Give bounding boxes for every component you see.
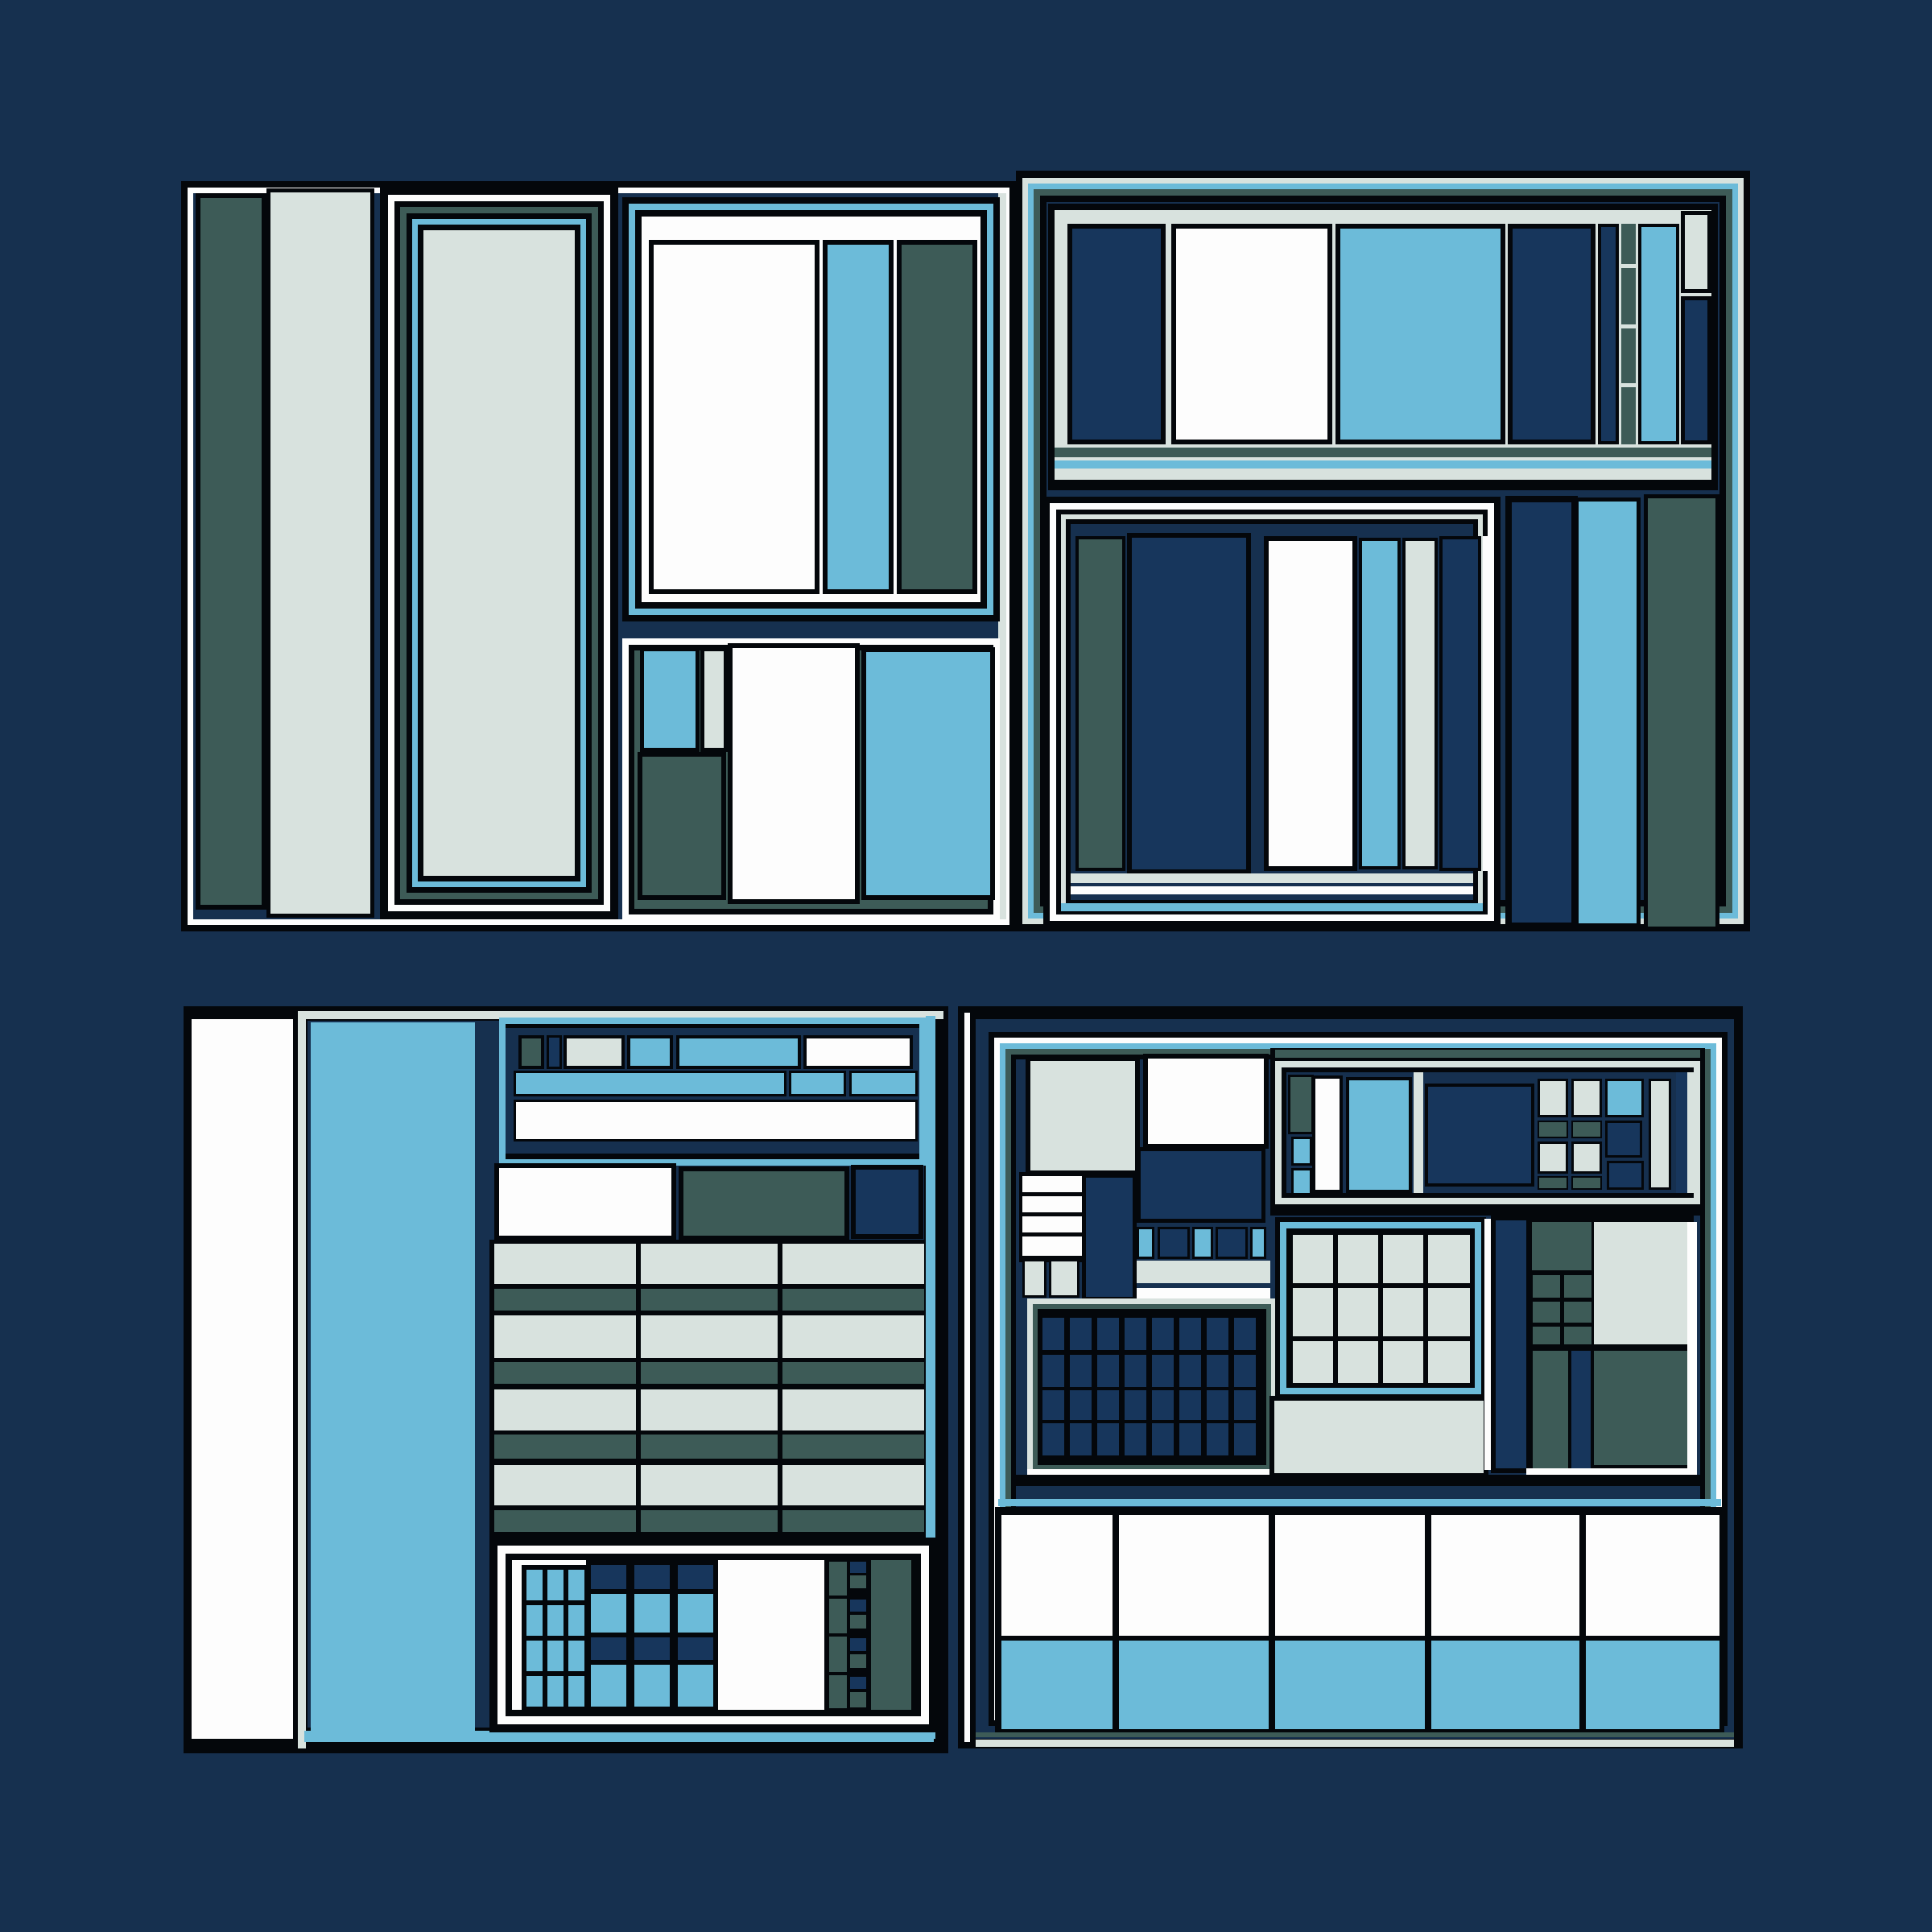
tr-boxl-gray-band <box>1071 873 1473 883</box>
br-cellrow-b2 <box>1192 1227 1213 1259</box>
br-brow-c2 <box>1119 1641 1269 1729</box>
br-sub-scell <box>1288 1075 1314 1134</box>
br-white-line <box>1484 1219 1491 1470</box>
bl-alt-1 <box>850 1562 866 1573</box>
br-sub-bcell1 <box>1291 1137 1312 1166</box>
tl-col-slate <box>196 193 266 910</box>
tr-colr-slate <box>1644 494 1719 931</box>
tr-boxt-stripe1 <box>1621 224 1636 264</box>
bl-boxb-slate-col <box>871 1560 911 1710</box>
br-grid-r3-c3 <box>1097 1390 1119 1420</box>
tr-boxl-col-blue <box>1359 538 1401 869</box>
br-grid-r4-c4 <box>1125 1423 1146 1455</box>
bl-r2-blue1 <box>514 1071 786 1096</box>
br-sub-s42 <box>1571 1176 1602 1190</box>
bl-alt-3 <box>850 1600 866 1612</box>
tr-boxl-col-gray <box>1402 538 1438 869</box>
br-lgrid-r2-c2 <box>1338 1288 1378 1336</box>
bl-r1-white <box>803 1035 913 1069</box>
br-lgrid-r3-c3 <box>1383 1341 1423 1383</box>
br-sub-s41 <box>1538 1176 1568 1190</box>
bl-r1-blue1 <box>627 1035 673 1069</box>
tr-colr-blue <box>1575 497 1641 927</box>
br-sub-wcol <box>1312 1075 1343 1193</box>
tl-col-gray <box>266 188 374 918</box>
bl-gridR-r4-c1 <box>591 1665 626 1707</box>
bl-gridL-r1-c1 <box>526 1570 543 1600</box>
tr-colr-navy <box>1512 502 1571 923</box>
br-sub-mband <box>1676 1072 1687 1193</box>
bl-gridL-r3-c1 <box>526 1641 543 1671</box>
br-rg-sg21 <box>1533 1302 1560 1323</box>
tr-boxt-navy-cell <box>1681 296 1711 444</box>
br-grid-r4-c3 <box>1097 1423 1119 1455</box>
br-sub-b13 <box>1605 1079 1644 1117</box>
br-rg-navy-col <box>1571 1351 1591 1470</box>
bl-detail-s4 <box>829 1675 847 1708</box>
tr-boxt-col-blue <box>1335 224 1505 444</box>
br-rg-sg32 <box>1564 1327 1591 1344</box>
tr-boxl-col-slate <box>1075 536 1125 871</box>
br-wrow-c3 <box>1275 1515 1425 1636</box>
bl-r1-slate <box>518 1035 544 1069</box>
bl-r1-navy <box>547 1035 562 1069</box>
bl-gridR-r2-c3 <box>678 1594 713 1633</box>
br-grid-r4-c5 <box>1152 1423 1174 1455</box>
bl-col-blue <box>311 1022 475 1737</box>
bl-table-r4-c1 <box>494 1362 636 1384</box>
br-brow-c5 <box>1586 1641 1719 1729</box>
tr-boxl-white-band <box>1071 886 1473 894</box>
bl-gridL-r2-c1 <box>526 1605 543 1636</box>
bl-table-r4-c3 <box>782 1362 924 1384</box>
bl-gridL-r2-c2 <box>547 1605 563 1636</box>
bl-gray-v-bar <box>298 1011 306 1748</box>
bl-table-r2-c1 <box>494 1289 636 1311</box>
br-grid-r2-c1 <box>1042 1355 1064 1387</box>
bl-alt-6 <box>850 1654 866 1668</box>
bl-table-r6-c2 <box>641 1435 778 1459</box>
tr-boxt-blue-line <box>1055 460 1711 469</box>
br-sub-bcell2 <box>1291 1168 1312 1195</box>
bl-alt-2 <box>850 1575 866 1588</box>
tr-boxt-col-navy3 <box>1598 224 1619 444</box>
bl-gridR-r3-c2 <box>634 1637 670 1660</box>
br-sub-g14 <box>1649 1079 1671 1190</box>
bl-gridR-r1-c2 <box>634 1565 670 1589</box>
bl-table-r6-c3 <box>782 1435 924 1459</box>
bl-detail-s1 <box>829 1562 847 1596</box>
br-sub-g32 <box>1571 1141 1602 1174</box>
br-sub-mblock <box>1425 1084 1534 1187</box>
br-grid-r3-c1 <box>1042 1390 1064 1420</box>
bl-gridR-r2-c2 <box>634 1594 670 1633</box>
br-sub-g12 <box>1571 1079 1602 1117</box>
tr-boxt-stripe3 <box>1621 328 1636 383</box>
br-sub-m23 <box>1605 1121 1642 1158</box>
br-sub-s22 <box>1571 1121 1602 1138</box>
br-grid-r2-c6 <box>1179 1355 1201 1387</box>
br-sub-g11 <box>1538 1079 1568 1117</box>
br-wband1 <box>1137 1288 1270 1299</box>
bl-table-r3-c1 <box>494 1315 636 1358</box>
br-rg-sg12 <box>1564 1275 1591 1298</box>
br-grid-r1-c3 <box>1097 1318 1119 1350</box>
br-cellrow-m2 <box>1216 1227 1248 1259</box>
br-grid-r1-c1 <box>1042 1318 1064 1350</box>
br-stripe-w4 <box>1022 1236 1082 1256</box>
bl-gridR-r3-c1 <box>591 1637 626 1660</box>
bl-table-r1-c3 <box>782 1244 924 1284</box>
tr-boxl-col-navy <box>1127 533 1251 874</box>
bl-table-r4-c2 <box>641 1362 778 1384</box>
br-grid-r1-c8 <box>1234 1318 1256 1350</box>
bl-table-r8-c1 <box>494 1510 636 1532</box>
tl-box4t-col-white <box>649 240 819 594</box>
br-cellrow-b3 <box>1250 1227 1266 1259</box>
br-grid-r2-c8 <box>1234 1355 1256 1387</box>
br-lgrid-r3-c2 <box>1338 1341 1378 1383</box>
br-cellrow-m1 <box>1158 1227 1190 1259</box>
br-grid-r2-c7 <box>1207 1355 1228 1387</box>
br-grid-r3-c7 <box>1207 1390 1228 1420</box>
tr-boxl-col-white <box>1264 536 1357 871</box>
bl-gridL-r3-c3 <box>568 1641 584 1671</box>
br-bottom-gray <box>976 1740 1734 1747</box>
br-wrow-c4 <box>1431 1515 1579 1636</box>
br-rg-slate2 <box>1594 1351 1687 1465</box>
br-blue-band <box>998 1499 1721 1506</box>
bl-gridL-r1-c2 <box>547 1570 563 1600</box>
tl-box4b-slate-block <box>638 752 726 900</box>
br-sub-gstrip <box>1414 1072 1423 1193</box>
br-rg-sg31 <box>1533 1327 1560 1344</box>
br-grid-r4-c1 <box>1042 1423 1064 1455</box>
bl-gridR-r2-c1 <box>591 1594 626 1633</box>
bl-table-r2-c2 <box>641 1289 778 1311</box>
bl-gridL-r4-c2 <box>547 1676 563 1707</box>
tr-boxt-col-navy2 <box>1508 224 1596 444</box>
br-stripe-w3 <box>1022 1216 1082 1232</box>
bl-r2-blue3 <box>849 1071 918 1096</box>
br-lgrid-r1-c4 <box>1428 1235 1470 1283</box>
tl-box4b-white-col <box>728 643 860 904</box>
br-grid-r2-c3 <box>1097 1355 1119 1387</box>
br-lgrid-r3-c4 <box>1428 1341 1470 1383</box>
br-grid-r3-c2 <box>1070 1390 1092 1420</box>
tr-boxt-bottom <box>1048 480 1718 488</box>
bl-detail-s3 <box>829 1637 847 1672</box>
bl-gridL-r4-c3 <box>568 1676 584 1707</box>
artwork-canvas <box>0 0 1932 1932</box>
br-grid-r3-c5 <box>1152 1390 1174 1420</box>
bl-gridR-r1-c3 <box>678 1565 713 1589</box>
bl-r3-white <box>514 1100 918 1141</box>
br-gband1 <box>1137 1261 1270 1283</box>
br-stripe-w1 <box>1022 1176 1082 1192</box>
bl-mid-white <box>494 1163 676 1241</box>
bl-r2-blue2 <box>789 1071 846 1096</box>
br-sub-bcol <box>1346 1077 1412 1193</box>
br-gray1 <box>1026 1056 1140 1175</box>
bl-table-r8-c3 <box>782 1510 924 1532</box>
br-grid-r3-c4 <box>1125 1390 1146 1420</box>
br-cellrow-b1 <box>1137 1227 1154 1259</box>
br-grid-r4-c6 <box>1179 1423 1201 1455</box>
tr-boxt-col-blue2 <box>1638 224 1679 444</box>
br-white-left-line <box>964 1013 970 1742</box>
bl-alt-8 <box>850 1692 866 1707</box>
br-grid-r1-c6 <box>1179 1318 1201 1350</box>
br-grid-r4-c8 <box>1234 1423 1256 1455</box>
bl-r1-gray <box>563 1035 625 1069</box>
bl-table-r3-c2 <box>641 1315 778 1358</box>
br-grid-r1-c7 <box>1207 1318 1228 1350</box>
br-rg-slate-col <box>1533 1351 1568 1470</box>
tr-boxt-slate-band <box>1055 448 1711 457</box>
br-brow-c1 <box>1001 1641 1113 1729</box>
bl-alt-4 <box>850 1615 866 1629</box>
br-grid-r2-c5 <box>1152 1355 1174 1387</box>
br-grid-r3-c8 <box>1234 1390 1256 1420</box>
bl-gridR-r4-c2 <box>634 1665 670 1707</box>
bl-gridR-r4-c3 <box>678 1665 713 1707</box>
tr-boxl-col-wstrip <box>1483 536 1492 871</box>
tr-boxt-stripe4 <box>1621 387 1636 444</box>
br-rg-sg11 <box>1533 1275 1560 1298</box>
br-lgrid-r3-c1 <box>1293 1341 1333 1383</box>
br-grid-r1-c4 <box>1125 1318 1146 1350</box>
bl-r1-blue2 <box>676 1035 801 1069</box>
tr-boxt-col-navy <box>1067 224 1166 444</box>
bl-gridL-r3-c2 <box>547 1641 563 1671</box>
bl-table-r7-c2 <box>641 1465 778 1505</box>
bl-table-r7-c3 <box>782 1465 924 1505</box>
br-grid-r3-c6 <box>1179 1390 1201 1420</box>
bl-col-white <box>192 1019 293 1739</box>
br-rg-sg22 <box>1564 1302 1591 1323</box>
br-lgray2 <box>1274 1401 1484 1473</box>
br-sub-g31 <box>1538 1141 1568 1174</box>
br-grid-r2-c4 <box>1125 1355 1146 1387</box>
br-sub-gband2 <box>1687 1072 1695 1193</box>
bl-table-r1-c1 <box>494 1244 636 1284</box>
br-brow-c3 <box>1275 1641 1425 1729</box>
tl-box4t-col-blue <box>823 240 894 594</box>
bl-alt-5 <box>850 1638 866 1651</box>
tl-box3-interior <box>423 230 575 876</box>
bl-table-r6-c1 <box>494 1435 636 1459</box>
bl-gridR-r3-c3 <box>678 1637 713 1660</box>
br-gcell2 <box>1049 1259 1080 1298</box>
bl-mid-navy <box>851 1165 923 1239</box>
bl-gridL-r4-c1 <box>526 1676 543 1707</box>
br-lgrid-r1-c3 <box>1383 1235 1423 1283</box>
bl-table-r1-c2 <box>641 1244 778 1284</box>
br-wrow-c1 <box>1001 1515 1113 1636</box>
bl-table-r8-c2 <box>641 1510 778 1532</box>
br-grid-r4-c2 <box>1070 1423 1092 1455</box>
bl-gridL-r2-c3 <box>568 1605 584 1636</box>
br-sub-s21 <box>1538 1121 1568 1138</box>
br-grid-r2-c2 <box>1070 1355 1092 1387</box>
tr-boxt-col-white <box>1171 224 1332 444</box>
br-brow-c4 <box>1431 1641 1579 1729</box>
br-lgrid-r2-c3 <box>1383 1288 1423 1336</box>
br-white1 <box>1143 1054 1269 1149</box>
bl-table-r5-c1 <box>494 1389 636 1430</box>
tl-box4b-blue-sq <box>640 647 700 752</box>
tl-box4b-gray-strip <box>700 647 728 752</box>
br-lgrid-r2-c4 <box>1428 1288 1470 1336</box>
br-rg-gray <box>1594 1222 1689 1344</box>
br-wrow-c2 <box>1119 1515 1269 1636</box>
tr-boxt-gray-cell <box>1681 211 1711 293</box>
bl-gridR-r1-c1 <box>591 1565 626 1589</box>
br-white-col2 <box>1687 1222 1697 1480</box>
bl-table-r3-c3 <box>782 1315 924 1358</box>
bl-table-r7-c1 <box>494 1465 636 1505</box>
br-grid-r4-c7 <box>1207 1423 1228 1455</box>
br-bottom-slate <box>976 1732 1734 1737</box>
br-gcell1 <box>1022 1259 1046 1298</box>
tr-boxl-blue-band <box>1061 903 1483 911</box>
bl-table-r2-c3 <box>782 1289 924 1311</box>
br-mcol1 <box>1082 1174 1137 1301</box>
br-lgrid-r1-c1 <box>1293 1235 1333 1283</box>
bl-table-r5-c3 <box>782 1389 924 1430</box>
br-kband <box>1016 1475 1700 1486</box>
br-lgrid-r1-c2 <box>1338 1235 1378 1283</box>
br-sub-m33 <box>1607 1161 1644 1190</box>
tl-box4t-col-slate <box>897 240 977 594</box>
br-grid-r1-c2 <box>1070 1318 1092 1350</box>
tr-boxt-stripe2 <box>1621 268 1636 324</box>
bl-table-r5-c2 <box>641 1389 778 1430</box>
bl-gridL-r1-c3 <box>568 1570 584 1600</box>
br-stripe-w2 <box>1022 1196 1082 1212</box>
tr-boxl-col-navy2 <box>1439 536 1481 871</box>
br-rg-slate1 <box>1532 1222 1591 1270</box>
br-wrow-c5 <box>1586 1515 1719 1636</box>
bl-mid-slate <box>679 1166 849 1241</box>
bl-alt-7 <box>850 1677 866 1689</box>
br-grid-r1-c5 <box>1152 1318 1174 1350</box>
tl-box4b-blue-col <box>861 647 995 900</box>
br-sub-slate-top <box>1275 1050 1700 1058</box>
br-lgrid-r2-c1 <box>1293 1288 1333 1336</box>
br-mblock1 <box>1137 1147 1265 1223</box>
bl-detail-s2 <box>829 1599 847 1633</box>
